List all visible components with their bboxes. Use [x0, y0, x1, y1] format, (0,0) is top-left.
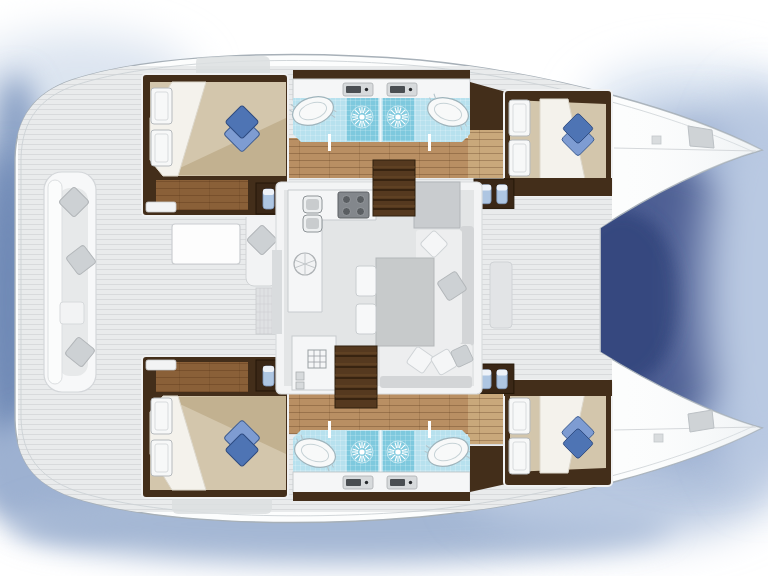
cockpit-sliding-door: [272, 250, 282, 334]
galley-sink: [303, 196, 322, 213]
step-pad: [146, 202, 176, 212]
cabin-shelf: [504, 380, 612, 396]
cabin-steps: [146, 180, 248, 212]
cabin-bulkhead: [470, 446, 506, 492]
deck-fitting-top: [652, 136, 661, 144]
round-hob: [294, 253, 316, 275]
starboard-bathrooms: [290, 421, 473, 501]
bathroom-door: [428, 421, 431, 438]
deck-fitting-bottom: [654, 434, 663, 442]
cockpit-table: [172, 224, 240, 264]
bench-cushion: [48, 180, 62, 384]
bench-seat-pad: [60, 302, 84, 324]
stool-cushion: [356, 266, 376, 296]
step-pad: [146, 360, 176, 370]
bathroom-door: [428, 134, 431, 151]
port-forward-cabin: [504, 90, 612, 196]
catamaran-floor-plan: [0, 0, 768, 576]
bathroom-door: [328, 134, 331, 151]
foredeck-hatch: [490, 262, 512, 328]
port-bathrooms: [288, 70, 473, 151]
bathroom-counter: [293, 472, 470, 493]
starboard-forward-cabin: [504, 380, 612, 486]
sofa-back: [380, 376, 472, 388]
companionway-stairs-starboard: [335, 346, 377, 408]
stool-cushion: [356, 304, 376, 334]
saloon: [272, 160, 482, 408]
galley-sink: [303, 215, 322, 232]
cabin-steps: [146, 360, 248, 392]
bathroom-door: [328, 421, 331, 438]
stove: [338, 192, 369, 218]
cabin-shelf: [504, 178, 612, 196]
deck-hatch-top: [688, 126, 714, 148]
corner-seat: [414, 182, 460, 228]
dinette-table: [376, 258, 434, 346]
galley-cabinet: [292, 336, 336, 390]
deck-hatch-bottom: [688, 410, 714, 432]
floor-plan-image: [0, 0, 768, 576]
companionway-stairs-port: [373, 160, 415, 216]
